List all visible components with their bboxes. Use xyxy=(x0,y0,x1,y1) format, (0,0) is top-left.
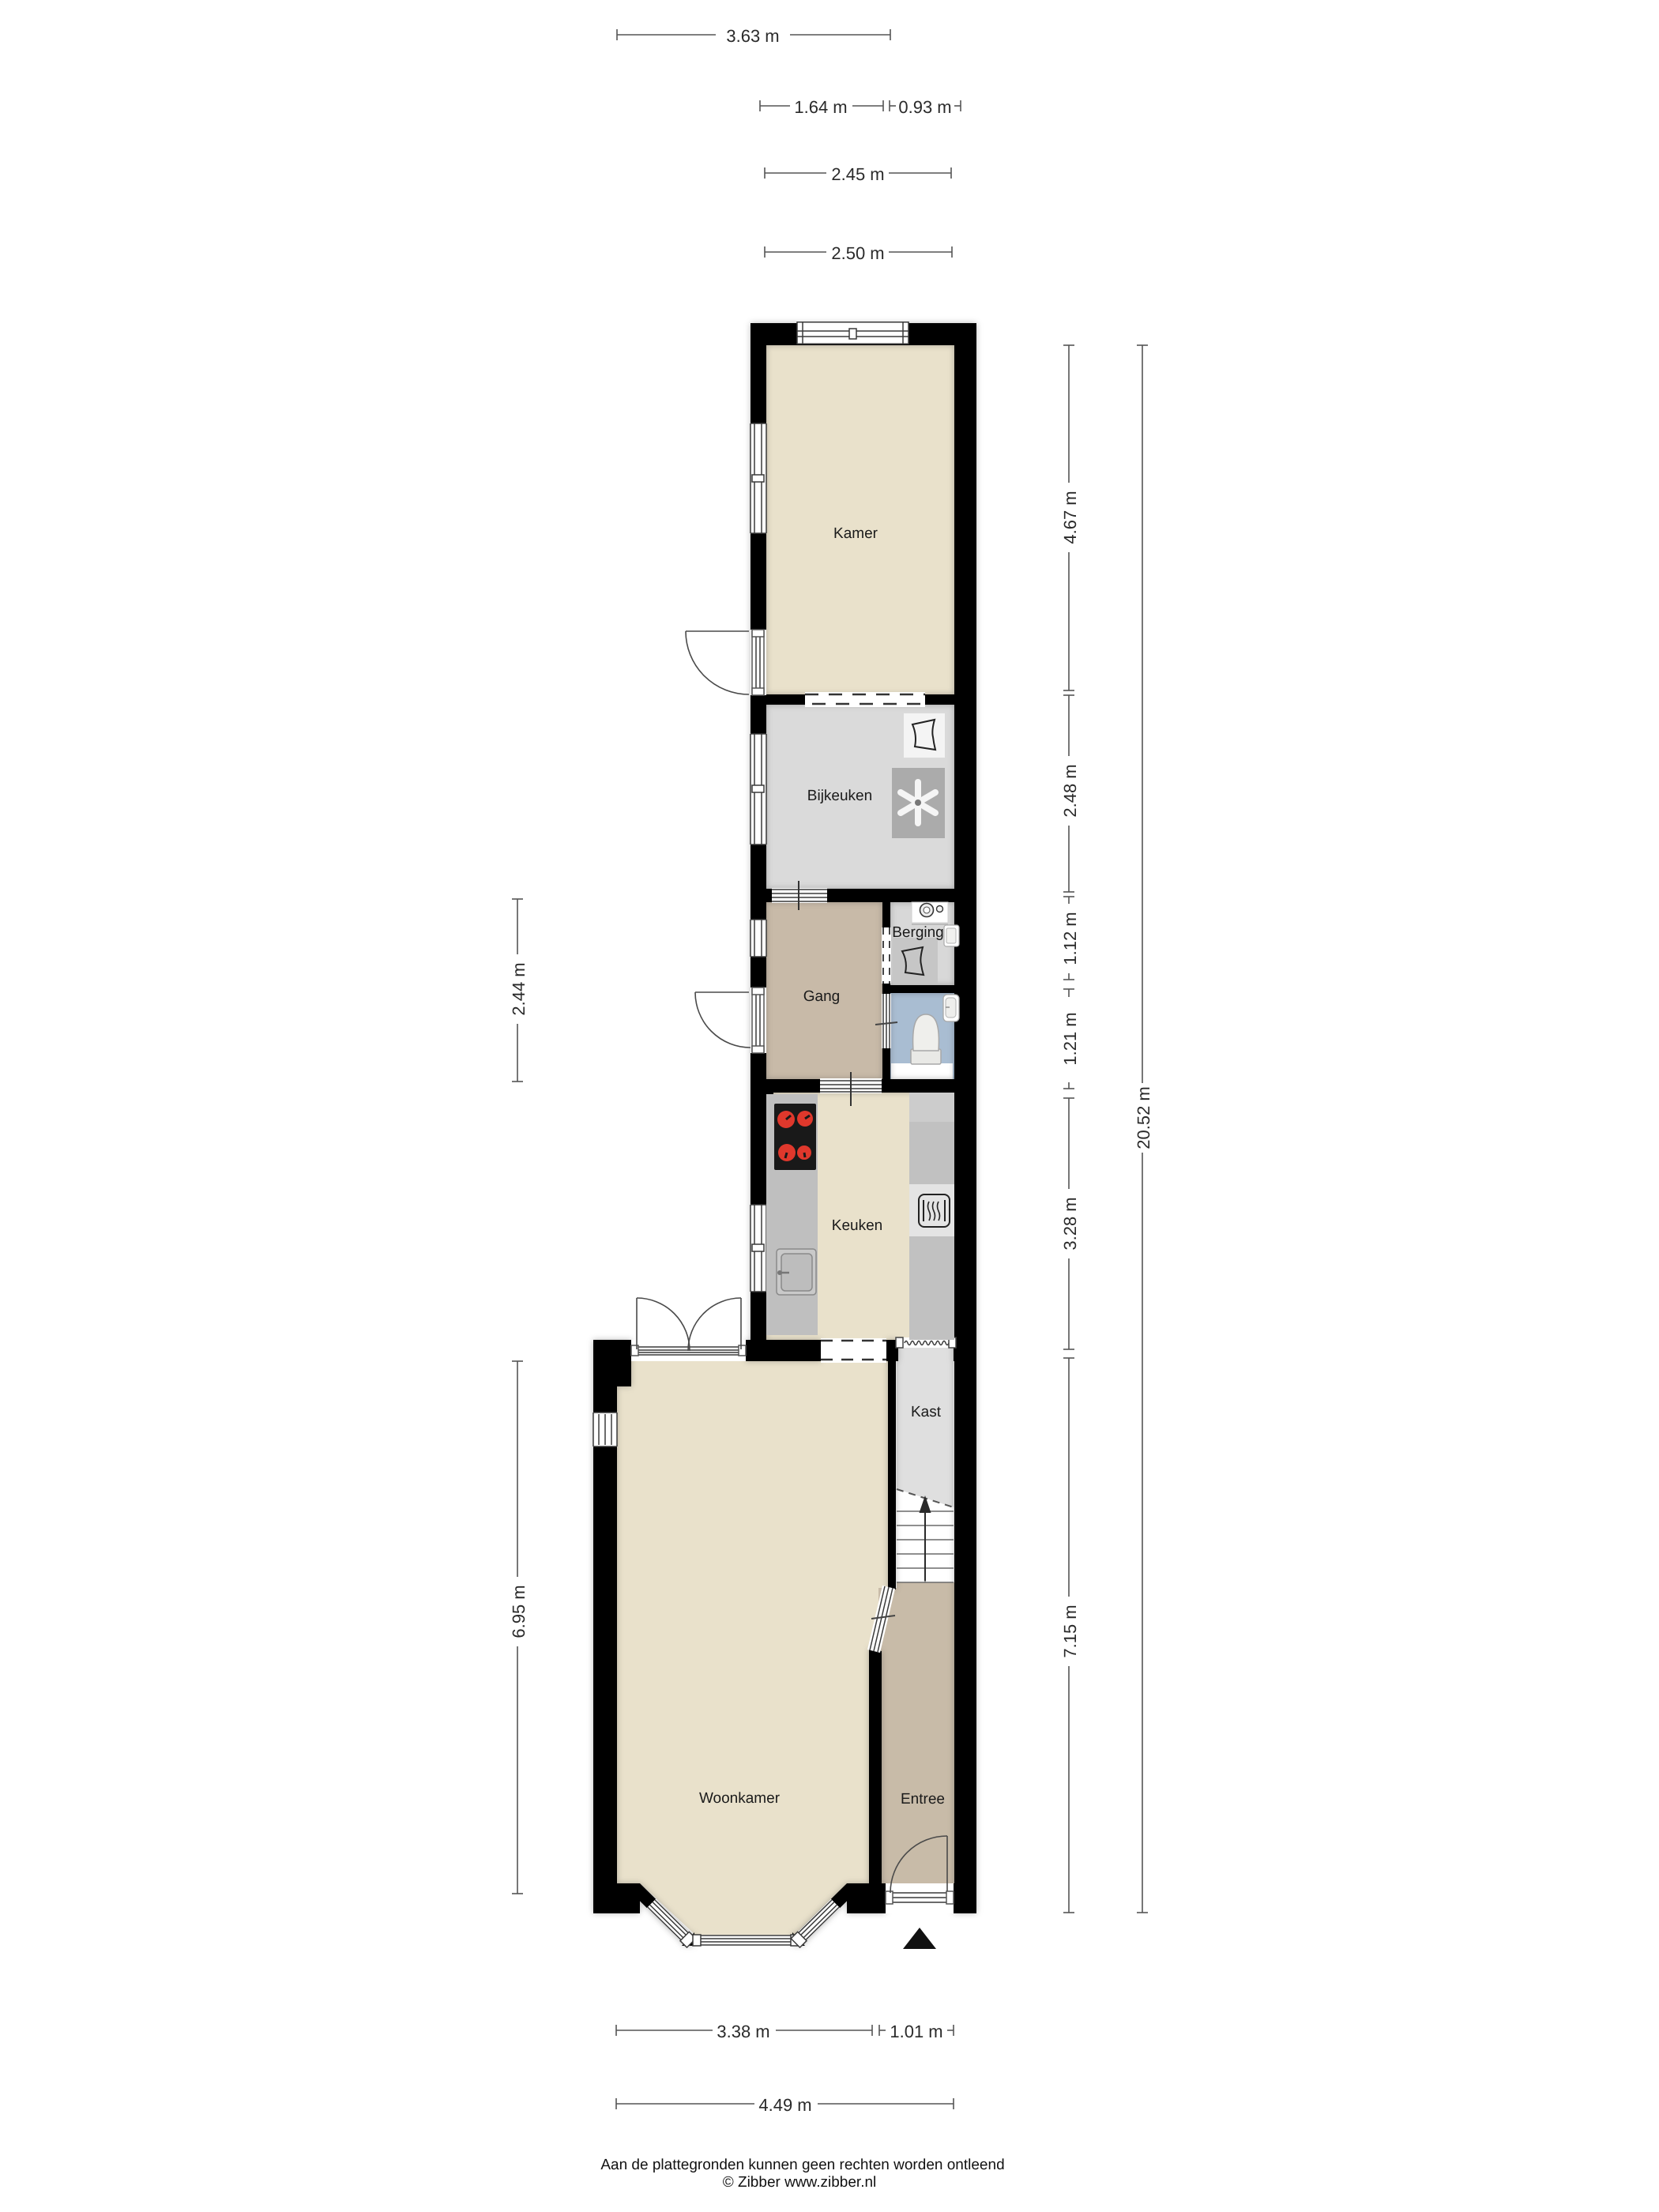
svg-text:Kast: Kast xyxy=(911,1404,942,1420)
svg-text:Bijkeuken: Bijkeuken xyxy=(807,788,872,804)
svg-text:Entree: Entree xyxy=(901,1791,945,1808)
svg-text:© Zibber www.zibber.nl: © Zibber www.zibber.nl xyxy=(723,2174,877,2191)
svg-text:3.38 m: 3.38 m xyxy=(717,2022,769,2041)
svg-text:0.93 m: 0.93 m xyxy=(898,97,951,117)
svg-text:6.95 m: 6.95 m xyxy=(509,1585,529,1638)
svg-text:Woonkamer: Woonkamer xyxy=(699,1790,781,1807)
svg-text:1.01 m: 1.01 m xyxy=(890,2022,942,2041)
svg-text:Keuken: Keuken xyxy=(832,1217,882,1234)
svg-text:20.52 m: 20.52 m xyxy=(1134,1086,1153,1149)
svg-text:1.12 m: 1.12 m xyxy=(1060,912,1080,965)
svg-text:3.63 m: 3.63 m xyxy=(726,26,779,46)
svg-text:2.45 m: 2.45 m xyxy=(831,164,884,184)
svg-text:Berging: Berging xyxy=(892,924,944,941)
svg-text:2.48 m: 2.48 m xyxy=(1060,764,1080,817)
svg-text:Gang: Gang xyxy=(803,988,840,1005)
svg-text:Aan de plattegronden kunnen ge: Aan de plattegronden kunnen geen rechten… xyxy=(600,2157,1004,2173)
svg-text:7.15 m: 7.15 m xyxy=(1060,1604,1080,1657)
svg-text:2.50 m: 2.50 m xyxy=(831,243,884,263)
svg-text:3.28 m: 3.28 m xyxy=(1060,1197,1080,1250)
svg-text:2.44 m: 2.44 m xyxy=(509,962,529,1015)
svg-text:4.49 m: 4.49 m xyxy=(758,2095,811,2115)
svg-text:1.64 m: 1.64 m xyxy=(794,97,847,117)
svg-text:4.67 m: 4.67 m xyxy=(1060,491,1080,544)
svg-text:Kamer: Kamer xyxy=(833,525,878,542)
svg-text:1.21 m: 1.21 m xyxy=(1060,1012,1080,1065)
